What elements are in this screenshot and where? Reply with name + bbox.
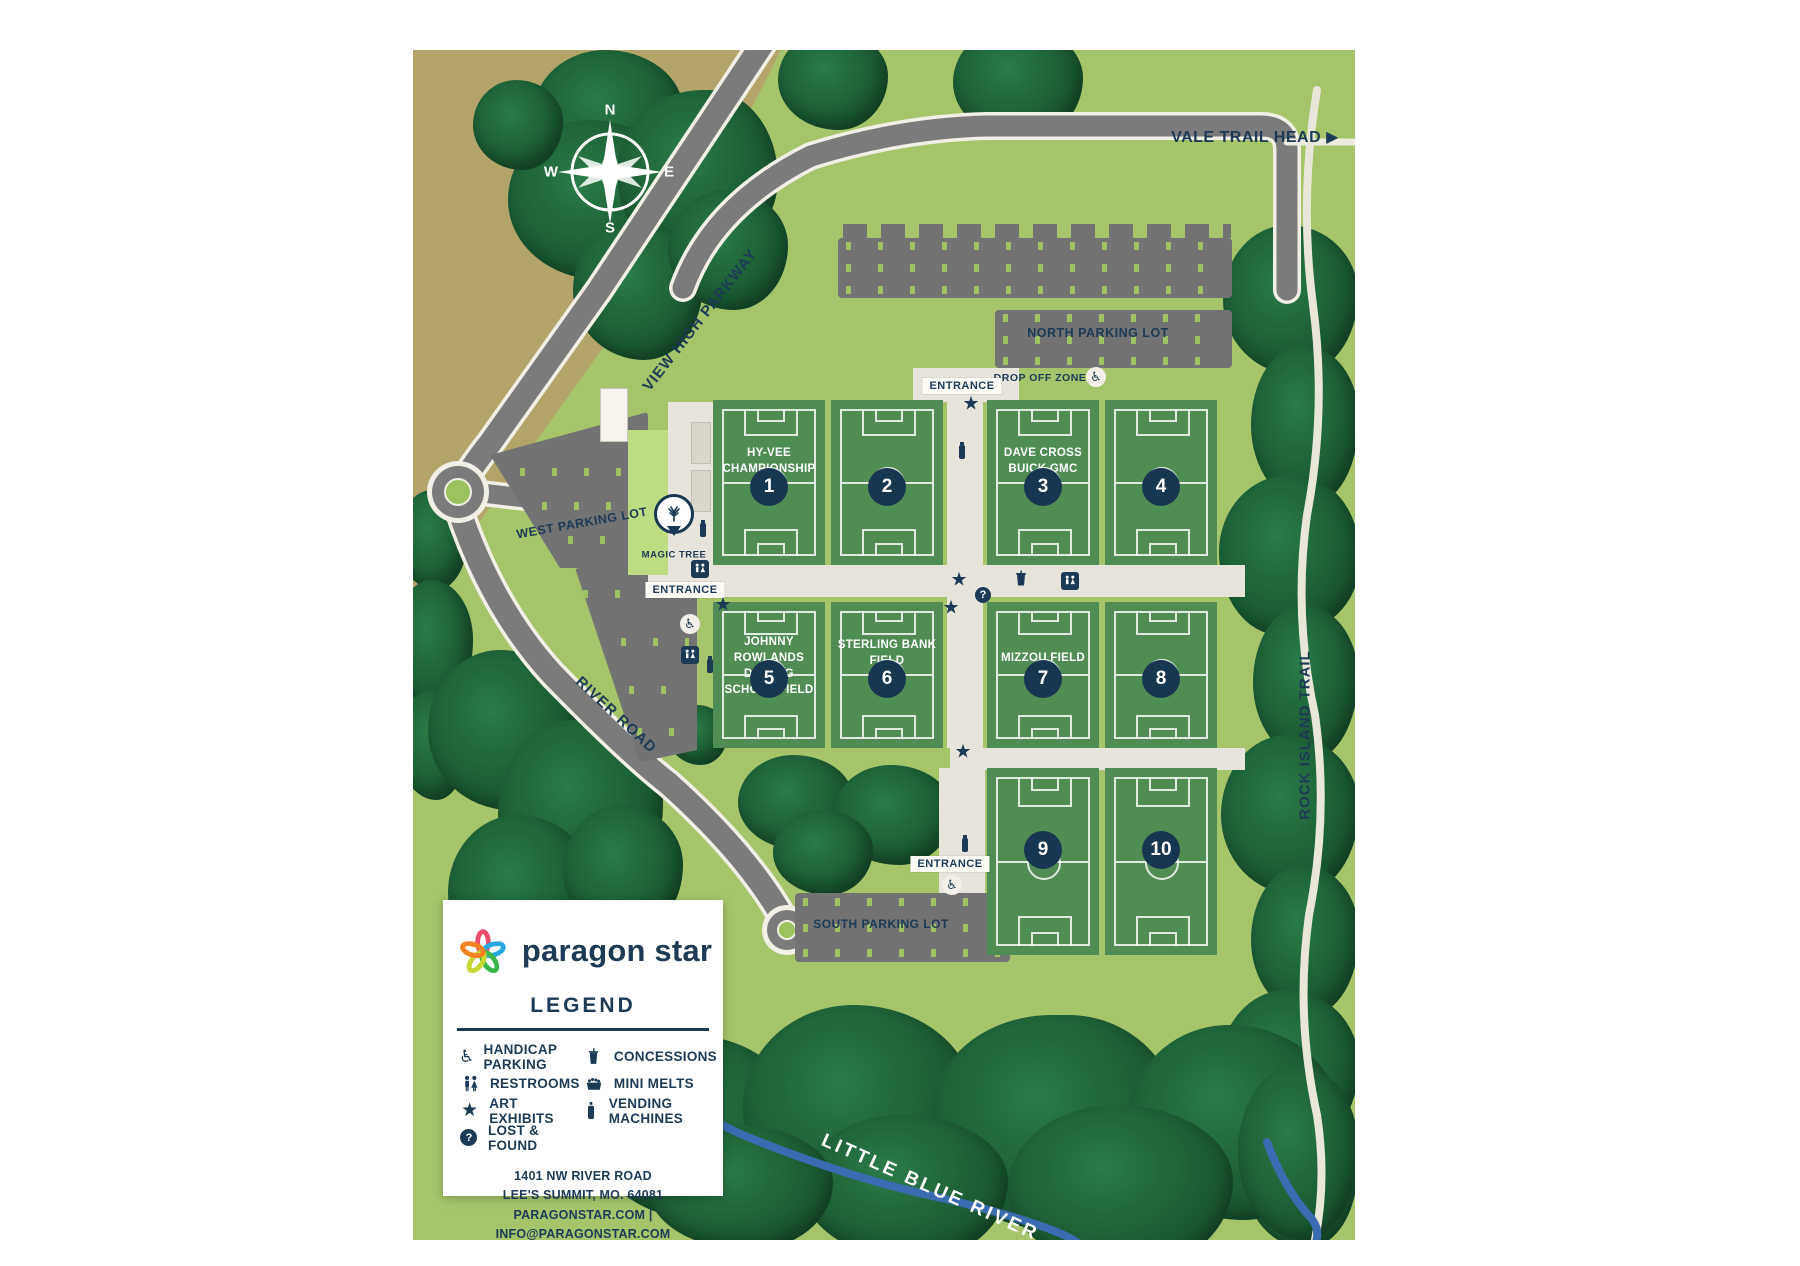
handicap-parking-icon: [942, 875, 962, 895]
legend-item-mini-melts: MINI MELTS: [583, 1070, 717, 1097]
south-entrance-walkway: [939, 768, 985, 893]
rock-island-trail-label: ROCK ISLAND TRAIL: [1297, 650, 1314, 820]
tree-icon: [664, 504, 684, 524]
west-roundabout: [427, 461, 489, 523]
art-exhibit-star-icon: [962, 395, 979, 414]
legend-title: LEGEND: [443, 994, 723, 1018]
field-10: 10: [1105, 768, 1217, 955]
art-exhibit-star-icon: [714, 596, 731, 615]
vending-machines-icon: [707, 659, 713, 673]
north-lot-spurs: [843, 224, 1231, 238]
address-line-3: PARAGONSTAR.COM | INFO@PARAGONSTAR.COM: [443, 1206, 723, 1240]
restrooms-icon: [691, 560, 709, 578]
bleachers: [691, 422, 711, 464]
handicap-parking-icon: [680, 614, 700, 634]
field-6-number: 6: [868, 660, 906, 698]
main-entrance-label: ENTRANCE: [645, 582, 724, 598]
field-2-number: 2: [868, 468, 906, 506]
field-5: JOHNNY ROWLANDS DRIVING SCHOOL FIELD 5: [713, 602, 825, 748]
field-8: 8: [1105, 602, 1217, 748]
compass-n: N: [605, 102, 616, 119]
address-line-2: LEE'S SUMMIT, MO. 64081: [443, 1186, 723, 1205]
legend-divider: [457, 1028, 709, 1031]
compass-e: E: [664, 164, 674, 181]
restrooms-icon: [681, 646, 699, 664]
legend-column-1: ♿ HANDICAP PARKING RESTROOMS ★ ART EXHIB…: [459, 1043, 583, 1151]
vending-machines-icon: [583, 1102, 600, 1119]
legend-item-concessions: CONCESSIONS: [583, 1043, 717, 1070]
field-4-number: 4: [1142, 468, 1180, 506]
address-line-1: 1401 NW RIVER ROAD: [443, 1167, 723, 1186]
legend-item-art-exhibits: ★ ART EXHIBITS: [459, 1097, 583, 1124]
address-block: 1401 NW RIVER ROAD LEE'S SUMMIT, MO. 640…: [443, 1167, 723, 1240]
handicap-parking-icon: [1086, 367, 1106, 387]
paragon-star-facility-map: HY-VEE CHAMPIONSHIP FIELD 1 2 DAVE CROSS…: [0, 0, 1800, 1266]
field-5-number: 5: [750, 660, 788, 698]
legend-item-lost-and-found: ? LOST & FOUND: [459, 1124, 583, 1151]
bleachers: [691, 470, 711, 512]
legend-item-handicap-parking: ♿ HANDICAP PARKING: [459, 1043, 583, 1070]
north-parking-lot: [838, 238, 1232, 298]
art-exhibit-star-icon: [942, 599, 959, 618]
field-7: MIZZOU FIELD 7: [987, 602, 1099, 748]
field-10-number: 10: [1142, 831, 1180, 869]
vale-trail-head-label: VALE TRAIL HEAD ▶: [1171, 127, 1339, 147]
vending-machines-icon: [962, 838, 968, 852]
compass-w: W: [544, 164, 558, 181]
legend-panel: paragon star LEGEND ♿ HANDICAP PARKING R…: [443, 900, 723, 1196]
field-1: HY-VEE CHAMPIONSHIP FIELD 1: [713, 400, 825, 565]
north-parking-lot-label: NORTH PARKING LOT: [1027, 326, 1169, 340]
field-4: 4: [1105, 400, 1217, 565]
magic-tree-label: MAGIC TREE: [642, 550, 707, 561]
field-9-number: 9: [1024, 831, 1062, 869]
arrow-right-icon: ▶: [1326, 129, 1339, 146]
main-plaza-walkway: [648, 565, 1245, 597]
stadium-building: [600, 388, 628, 442]
lost-and-found-icon: ?: [975, 587, 991, 603]
field-1-number: 1: [750, 468, 788, 506]
art-exhibit-star-icon: [954, 743, 971, 762]
magic-tree-pin: [654, 494, 694, 534]
vending-machines-icon: [700, 523, 706, 537]
restrooms-icon: [459, 1075, 481, 1092]
map-area: HY-VEE CHAMPIONSHIP FIELD 1 2 DAVE CROSS…: [413, 50, 1355, 1240]
legend-item-vending-machines: VENDING MACHINES: [583, 1097, 717, 1124]
field-3-number: 3: [1024, 468, 1062, 506]
legend-column-2: CONCESSIONS MINI MELTS VENDING MACHINES: [583, 1043, 717, 1151]
field-6: STERLING BANK FIELD 6: [831, 602, 943, 748]
paragon-star-logo: [454, 922, 512, 980]
mini-melts-icon: [583, 1076, 605, 1091]
brand-row: paragon star: [443, 922, 723, 980]
lost-and-found-icon: ?: [460, 1129, 477, 1146]
brand-name: paragon star: [522, 933, 712, 969]
field-3: DAVE CROSS BUICK GMC FIELD 3: [987, 400, 1099, 565]
restrooms-icon: [1061, 572, 1079, 590]
field-7-number: 7: [1024, 660, 1062, 698]
legend-item-restrooms: RESTROOMS: [459, 1070, 583, 1097]
north-entrance-label: ENTRANCE: [922, 378, 1001, 394]
mid-walkway: [947, 597, 983, 748]
compass-s: S: [605, 220, 615, 237]
little-blue-river-path: [1267, 1142, 1317, 1240]
lower-walkway: [950, 748, 1245, 770]
concessions-icon: [583, 1048, 605, 1065]
vending-machines-icon: [959, 445, 965, 459]
concessions-icon: [1014, 571, 1028, 592]
art-exhibit-star-icon: [950, 571, 967, 590]
art-exhibits-icon: ★: [459, 1099, 480, 1122]
south-parking-lot-label: SOUTH PARKING LOT: [813, 917, 949, 931]
field-2: 2: [831, 400, 943, 565]
south-entrance-label: ENTRANCE: [910, 856, 989, 872]
field-9: 9: [987, 768, 1099, 955]
drop-off-zone-label: DROP OFF ZONE: [994, 372, 1087, 384]
compass-rose: N E S W: [545, 102, 675, 232]
field-8-number: 8: [1142, 660, 1180, 698]
handicap-parking-icon: ♿: [459, 1047, 475, 1067]
